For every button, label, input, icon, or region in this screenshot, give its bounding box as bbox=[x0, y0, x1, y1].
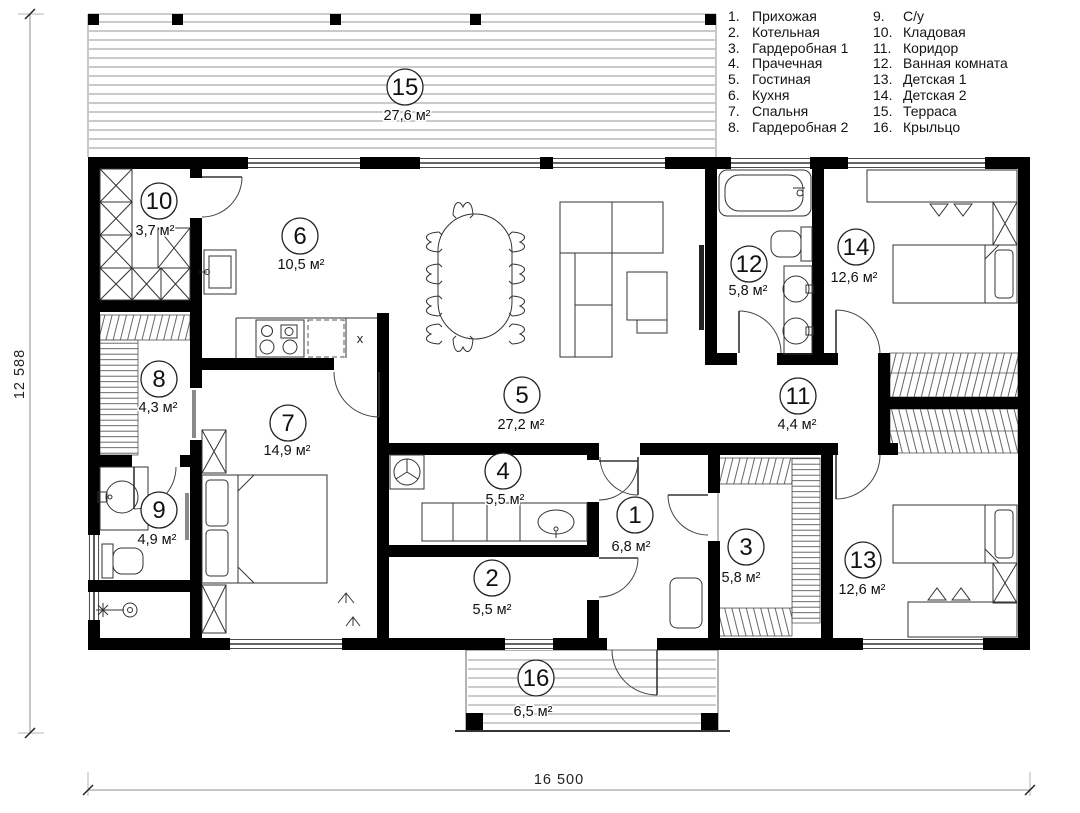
single-bed-1 bbox=[893, 505, 1017, 563]
wardrobe-room-14 bbox=[890, 353, 1018, 397]
room-2-number: 2 bbox=[485, 565, 498, 592]
legend-item-num: 15. bbox=[873, 104, 903, 120]
toilet-wc bbox=[102, 544, 143, 578]
window-bathroom bbox=[731, 157, 810, 169]
legend-item-2: 2.Котельная bbox=[728, 25, 873, 41]
wardrobe-box-kidsroom-1 bbox=[993, 563, 1017, 603]
room-label-8: 8 4,3 м² bbox=[139, 361, 178, 416]
room-9-number: 9 bbox=[152, 497, 165, 524]
door-hall-wardrobe1 bbox=[668, 495, 708, 535]
porch-planks bbox=[468, 660, 716, 723]
stove bbox=[256, 320, 304, 357]
window-wc bbox=[88, 535, 100, 620]
window-kitchen bbox=[248, 157, 360, 169]
room-12-area: 5,8 м² bbox=[729, 283, 768, 299]
room-label-4: 4 5,5 м² bbox=[485, 453, 525, 508]
room-label-6: 6 10,5 м² bbox=[277, 218, 324, 273]
room-label-15: 15 27,6 м² bbox=[383, 69, 430, 124]
room-label-1: 1 6,8 м² bbox=[612, 497, 653, 555]
legend-item-num: 11. bbox=[873, 41, 903, 57]
legend-item-10: 10.Кладовая bbox=[873, 25, 1018, 41]
room-9-area: 4,9 м² bbox=[138, 532, 177, 548]
legend-item-6: 6.Кухня bbox=[728, 88, 873, 104]
room-label-7: 7 14,9 м² bbox=[263, 405, 310, 459]
plant bbox=[338, 593, 360, 626]
desk-kidsroom-2 bbox=[867, 170, 1017, 216]
legend-item-num: 16. bbox=[873, 120, 903, 136]
legend-item-num: 5. bbox=[728, 72, 752, 88]
toilet-bathroom bbox=[771, 227, 812, 261]
laundry-counter bbox=[422, 503, 587, 541]
dishwasher bbox=[308, 320, 344, 357]
legend-item-label: Детская 2 bbox=[903, 88, 967, 104]
legend-item-14: 14.Детская 2 bbox=[873, 88, 1018, 104]
front-door bbox=[612, 650, 657, 695]
legend-item-num: 7. bbox=[728, 104, 752, 120]
window-living-1 bbox=[420, 157, 540, 169]
legend-item-label: Детская 1 bbox=[903, 72, 967, 88]
legend-item-num: 1. bbox=[728, 9, 752, 25]
room-4-area: 5,5 м² bbox=[486, 492, 525, 508]
legend-item-num: 8. bbox=[728, 120, 752, 136]
legend-item-label: Спальня bbox=[752, 104, 808, 120]
legend-item-15: 15.Терраса bbox=[873, 104, 1018, 120]
dining-table bbox=[426, 202, 524, 351]
legend-item-label: С/у bbox=[903, 9, 924, 25]
legend: 1.Прихожая 2.Котельная 3.Гардеробная 1 4… bbox=[728, 9, 1018, 135]
legend-item-num: 6. bbox=[728, 88, 752, 104]
door-corridor-kidsroom-1 bbox=[836, 455, 880, 499]
window-boiler bbox=[505, 638, 553, 650]
floor-plan-page: 12 588 16 500 bbox=[0, 0, 1080, 813]
window-kidsroom-1 bbox=[863, 638, 983, 650]
door-boiler-hall bbox=[599, 558, 638, 597]
room-14-number: 14 bbox=[843, 234, 870, 261]
room-7-number: 7 bbox=[281, 410, 294, 437]
legend-item-num: 14. bbox=[873, 88, 903, 104]
room-16-number: 16 bbox=[523, 665, 550, 692]
room-5-number: 5 bbox=[515, 382, 528, 409]
sofa bbox=[560, 202, 663, 357]
width-dimension-label: 16 500 bbox=[534, 772, 584, 788]
room-5-area: 27,2 м² bbox=[497, 417, 544, 433]
bedroom-wardrobe-boxes bbox=[202, 430, 226, 633]
room-7-area: 14,9 м² bbox=[263, 443, 310, 459]
tv bbox=[699, 245, 704, 330]
mirror bbox=[185, 493, 189, 540]
room-13-area: 12,6 м² bbox=[838, 582, 885, 598]
kitchen-sink bbox=[199, 250, 236, 294]
room-1-number: 1 bbox=[628, 502, 641, 529]
porch-decking bbox=[455, 650, 730, 731]
room-15-number: 15 bbox=[392, 74, 419, 101]
wardrobe-room-13 bbox=[890, 409, 1018, 453]
room-label-5: 5 27,2 м² bbox=[497, 377, 544, 433]
room-label-11: 11 4,4 м² bbox=[778, 378, 817, 433]
legend-item-11: 11.Коридор bbox=[873, 41, 1018, 57]
legend-item-num: 2. bbox=[728, 25, 752, 41]
desk-kidsroom-1 bbox=[908, 588, 1017, 637]
legend-item-16: 16.Крыльцо bbox=[873, 120, 1018, 136]
legend-item-3: 3.Гардеробная 1 bbox=[728, 41, 873, 57]
legend-item-num: 13. bbox=[873, 72, 903, 88]
legend-column-2: 9.С/у 10.Кладовая 11.Коридор 12.Ванная к… bbox=[873, 9, 1018, 135]
window-living-2 bbox=[553, 157, 665, 169]
room-13-number: 13 bbox=[850, 547, 877, 574]
door-corridor-kidsroom-2 bbox=[836, 310, 880, 354]
single-bed-2 bbox=[893, 245, 1017, 303]
legend-item-1: 1.Прихожая bbox=[728, 9, 873, 25]
legend-item-5: 5.Гостиная bbox=[728, 72, 873, 88]
height-dimension-label: 12 588 bbox=[12, 349, 28, 399]
room-14-area: 12,6 м² bbox=[830, 270, 877, 286]
legend-item-4: 4.Прачечная bbox=[728, 56, 873, 72]
porch-posts bbox=[466, 713, 718, 730]
window-bedroom bbox=[230, 638, 342, 650]
legend-item-num: 12. bbox=[873, 56, 903, 72]
room-10-number: 10 bbox=[146, 188, 173, 215]
room-label-12: 12 5,8 м² bbox=[729, 246, 768, 299]
room-1-area: 6,8 м² bbox=[612, 539, 651, 555]
legend-item-num: 4. bbox=[728, 56, 752, 72]
double-bed bbox=[202, 475, 327, 583]
room-8-number: 8 bbox=[152, 366, 165, 393]
room-12-number: 12 bbox=[736, 251, 763, 278]
legend-item-label: Гардеробная 1 bbox=[752, 41, 848, 57]
room-label-13: 13 12,6 м² bbox=[838, 542, 885, 598]
room-label-10: 10 3,7 м² bbox=[136, 183, 177, 239]
legend-item-9: 9.С/у bbox=[873, 9, 1018, 25]
room-11-area: 4,4 м² bbox=[778, 417, 817, 433]
washbasin bbox=[98, 467, 148, 530]
washing-machine bbox=[390, 455, 424, 489]
door-kitchen-pantry bbox=[202, 177, 242, 217]
door-corridor-bathroom bbox=[739, 311, 781, 353]
legend-item-label: Терраса bbox=[903, 104, 957, 120]
door-living-hall bbox=[600, 457, 638, 495]
room-8-area: 4,3 м² bbox=[139, 400, 178, 416]
room-11-number: 11 bbox=[786, 383, 811, 410]
wardrobe-box-kidsroom-2 bbox=[993, 202, 1017, 245]
door-living-bedroom bbox=[334, 372, 379, 417]
room-3-number: 3 bbox=[739, 534, 752, 561]
legend-item-12: 12.Ванная комната bbox=[873, 56, 1018, 72]
hallway-bench bbox=[670, 578, 702, 628]
door-bedroom-wardrobe2 bbox=[192, 390, 196, 438]
legend-item-num: 9. bbox=[873, 9, 903, 25]
shower bbox=[96, 603, 137, 617]
window-kidsroom-2 bbox=[848, 157, 985, 169]
room-16-area: 6,5 м² bbox=[514, 704, 553, 720]
legend-item-label: Крыльцо bbox=[903, 120, 960, 136]
room-15-area: 27,6 м² bbox=[383, 108, 430, 124]
legend-item-7: 7.Спальня bbox=[728, 104, 873, 120]
room-4-number: 4 bbox=[496, 458, 509, 485]
legend-item-num: 10. bbox=[873, 25, 903, 41]
bathtub bbox=[719, 170, 811, 216]
kitchen-unit-x-label: x bbox=[357, 331, 364, 346]
armchair bbox=[627, 272, 667, 333]
room-10-area: 3,7 м² bbox=[136, 223, 175, 239]
legend-item-label: Кладовая bbox=[903, 25, 966, 41]
legend-column-1: 1.Прихожая 2.Котельная 3.Гардеробная 1 4… bbox=[728, 9, 873, 135]
room-6-area: 10,5 м² bbox=[277, 257, 324, 273]
room-3-area: 5,8 м² bbox=[722, 570, 761, 586]
legend-item-label: Ванная комната bbox=[903, 56, 1008, 72]
legend-item-label: Гостиная bbox=[752, 72, 811, 88]
room-label-2: 2 5,5 м² bbox=[473, 560, 512, 618]
legend-item-label: Котельная bbox=[752, 25, 820, 41]
room-6-number: 6 bbox=[293, 223, 306, 250]
room-2-area: 5,5 м² bbox=[473, 602, 512, 618]
legend-item-label: Гардеробная 2 bbox=[752, 120, 848, 136]
legend-item-8: 8.Гардеробная 2 bbox=[728, 120, 873, 136]
room-label-9: 9 4,9 м² bbox=[138, 492, 177, 548]
legend-item-label: Кухня bbox=[752, 88, 789, 104]
room-label-14: 14 12,6 м² bbox=[830, 229, 877, 286]
legend-item-num: 3. bbox=[728, 41, 752, 57]
double-washbasin bbox=[783, 266, 813, 354]
legend-item-label: Коридор bbox=[903, 41, 958, 57]
terrace-posts bbox=[88, 14, 716, 25]
interior-walls bbox=[88, 157, 1018, 650]
legend-item-13: 13.Детская 1 bbox=[873, 72, 1018, 88]
legend-item-label: Прихожая bbox=[752, 9, 817, 25]
legend-item-label: Прачечная bbox=[752, 56, 822, 72]
